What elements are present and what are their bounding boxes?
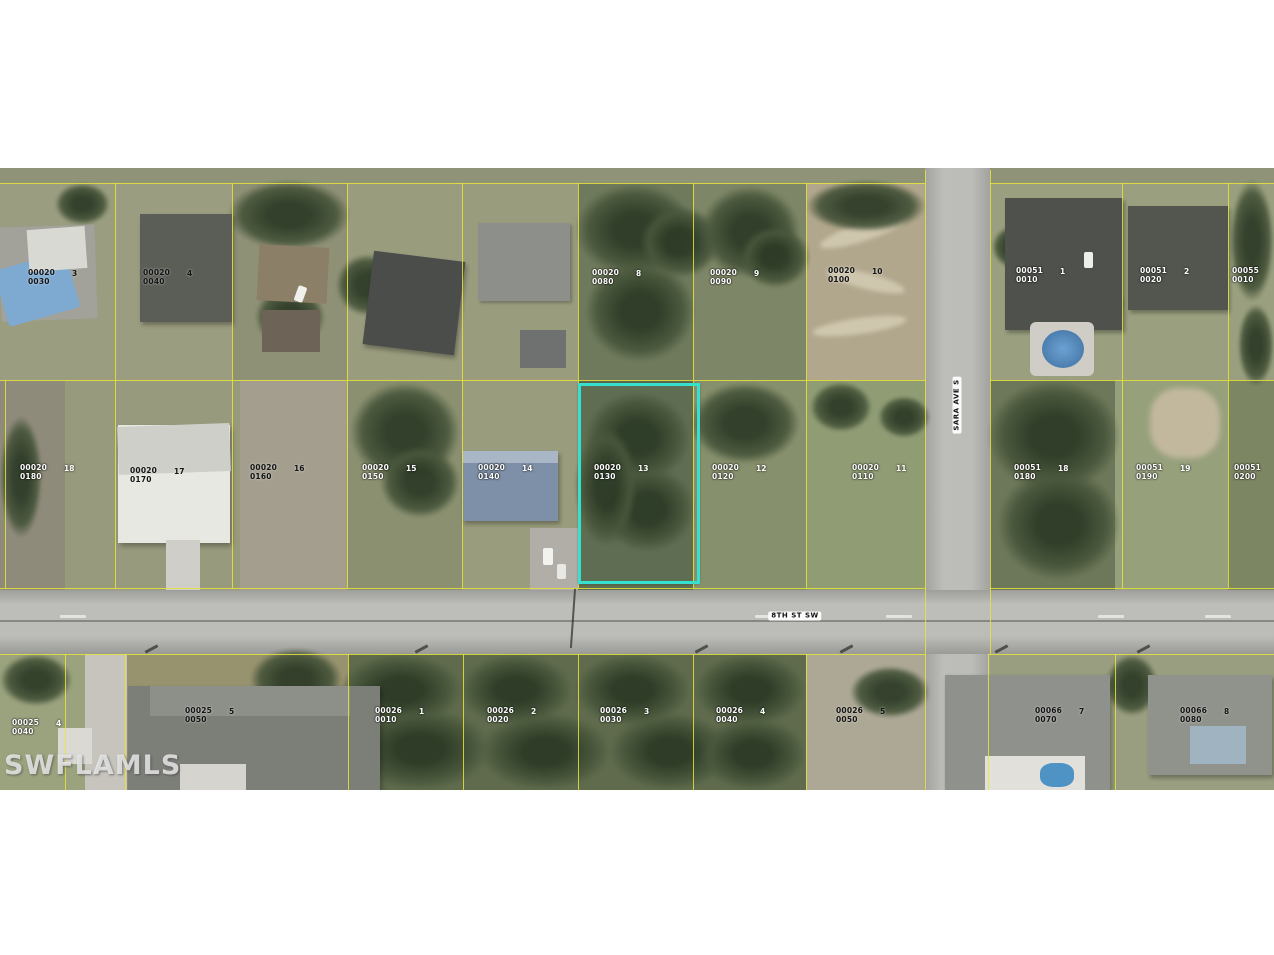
parcel-lot-number: 18 xyxy=(1058,465,1068,473)
parcel-label: 00026 0040 xyxy=(716,706,743,724)
parcel-label: 00020 0160 xyxy=(250,463,277,481)
parcel-lot-number: 19 xyxy=(1180,465,1190,473)
parcel-label: 00051 0200 xyxy=(1234,463,1261,481)
parcel-boundary-line xyxy=(1228,183,1229,588)
parcel-lot-number: 9 xyxy=(754,270,759,278)
parcel-boundary-line xyxy=(990,380,1274,381)
parcel-boundary-line xyxy=(347,183,348,588)
parcel-label: 00051 0010 xyxy=(1016,266,1043,284)
parcel-lot-number: 17 xyxy=(174,468,184,476)
parcel-label: 00020 0100 xyxy=(828,266,855,284)
parcel-lot-number: 3 xyxy=(644,708,649,716)
parcel-boundary-line xyxy=(806,183,807,588)
parcel-label: 00066 0080 xyxy=(1180,706,1207,724)
parcel-label: 00020 0180 xyxy=(20,463,47,481)
street-name-label: 8TH ST SW xyxy=(768,612,821,621)
parcel-lot-number: 2 xyxy=(531,708,536,716)
parcel-boundary-line xyxy=(988,654,1274,655)
parcel-label: 00020 0080 xyxy=(592,268,619,286)
highlighted-parcel xyxy=(578,383,700,584)
parcel-label: 00051 0180 xyxy=(1014,463,1041,481)
parcel-label: 00026 0050 xyxy=(836,706,863,724)
parcel-lot-number: 15 xyxy=(406,465,416,473)
parcel-lot-number: 14 xyxy=(522,465,532,473)
parcel-lot-number: 4 xyxy=(56,720,61,728)
parcel-lot-number: 16 xyxy=(294,465,304,473)
parcel-lot-number: 11 xyxy=(896,465,906,473)
parcel-boundary-line xyxy=(462,183,463,588)
parcel-label: 00020 0130 xyxy=(594,463,621,481)
parcel-lot-number: 12 xyxy=(756,465,766,473)
parcel-boundary-line xyxy=(578,654,579,790)
parcel-boundary-line xyxy=(925,170,926,654)
parcel-boundary-line xyxy=(348,654,349,790)
parcel-lot-number: 10 xyxy=(872,268,882,276)
parcel-boundary-line xyxy=(693,654,694,790)
parcel-lot-number: 4 xyxy=(187,270,192,278)
parcel-lot-number: 18 xyxy=(64,465,74,473)
parcel-boundary-line xyxy=(1115,654,1116,790)
parcel-lot-number: 4 xyxy=(760,708,765,716)
parcel-lot-number: 8 xyxy=(636,270,641,278)
parcel-label: 00051 0020 xyxy=(1140,266,1167,284)
parcel-lot-number: 8 xyxy=(1224,708,1229,716)
parcel-label: 00020 0120 xyxy=(712,463,739,481)
parcel-boundary-line xyxy=(0,588,925,589)
parcel-label: 00025 0040 xyxy=(12,718,39,736)
parcel-label: 00066 0070 xyxy=(1035,706,1062,724)
parcel-label: 00026 0010 xyxy=(375,706,402,724)
parcel-lot-number: 13 xyxy=(638,465,648,473)
parcel-lot-number: 5 xyxy=(880,708,885,716)
parcel-lot-number: 2 xyxy=(1184,268,1189,276)
map-annotations: 00020 0030300020 0040400020 0080800020 0… xyxy=(0,168,1274,790)
parcel-lot-number: 7 xyxy=(1079,708,1084,716)
parcel-label: 00026 0030 xyxy=(600,706,627,724)
parcel-label: 00020 0140 xyxy=(478,463,505,481)
parcel-label: 00020 0030 xyxy=(28,268,55,286)
parcel-label: 00026 0020 xyxy=(487,706,514,724)
parcel-lot-number: 1 xyxy=(1060,268,1065,276)
parcel-label: 00055 0010 xyxy=(1232,266,1259,284)
parcel-lot-number: 3 xyxy=(72,270,77,278)
parcel-label: 00020 0110 xyxy=(852,463,879,481)
parcel-boundary-line xyxy=(5,380,6,588)
parcel-label: 00051 0190 xyxy=(1136,463,1163,481)
watermark: SWFLAMLS xyxy=(4,752,181,779)
aerial-map-photo: 00020 0030300020 0040400020 0080800020 0… xyxy=(0,168,1274,790)
parcel-label: 00020 0170 xyxy=(130,466,157,484)
parcel-label: 00020 0150 xyxy=(362,463,389,481)
parcel-boundary-line xyxy=(990,588,1274,589)
parcel-boundary-line xyxy=(806,654,807,790)
parcel-lot-number: 1 xyxy=(419,708,424,716)
parcel-boundary-line xyxy=(990,170,991,654)
parcel-boundary-line xyxy=(232,183,233,588)
parcel-boundary-line xyxy=(463,654,464,790)
parcel-boundary-line xyxy=(988,654,989,790)
parcel-label: 00020 0040 xyxy=(143,268,170,286)
parcel-boundary-line xyxy=(1122,183,1123,588)
street-name-label: SARA AVE S xyxy=(953,376,962,433)
mls-aerial-listing-photo: 00020 0030300020 0040400020 0080800020 0… xyxy=(0,0,1274,955)
parcel-boundary-line xyxy=(990,183,1274,184)
parcel-label: 00020 0090 xyxy=(710,268,737,286)
parcel-boundary-line xyxy=(925,654,926,790)
parcel-boundary-line xyxy=(115,183,116,588)
parcel-label: 00025 0050 xyxy=(185,706,212,724)
parcel-lot-number: 5 xyxy=(229,708,234,716)
